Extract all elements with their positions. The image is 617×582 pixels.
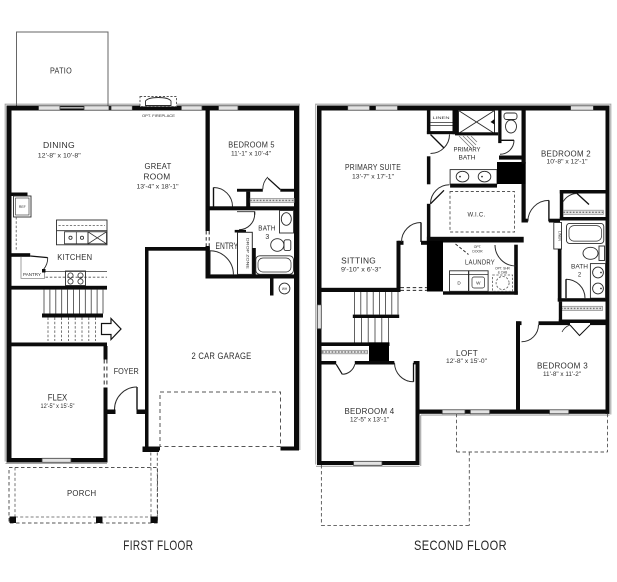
svg-text:KITCHEN: KITCHEN	[57, 252, 92, 262]
svg-text:13'-7" x 17'-1": 13'-7" x 17'-1"	[352, 174, 395, 181]
svg-text:PATIO: PATIO	[50, 67, 72, 76]
svg-text:DINING: DINING	[43, 140, 75, 150]
svg-text:FIRST FLOOR: FIRST FLOOR	[123, 537, 193, 553]
svg-text:12'-5" x 13'-1": 12'-5" x 13'-1"	[350, 417, 390, 424]
svg-text:LINEN: LINEN	[433, 115, 450, 120]
svg-text:GREAT: GREAT	[145, 161, 172, 171]
svg-text:12'-5" x 15'-5": 12'-5" x 15'-5"	[41, 403, 76, 410]
svg-text:OPT.: OPT.	[474, 245, 482, 249]
svg-text:2: 2	[578, 273, 582, 279]
svg-text:WH: WH	[282, 287, 288, 291]
svg-text:LOFT: LOFT	[456, 348, 478, 358]
svg-text:ROOM: ROOM	[144, 172, 171, 182]
svg-text:FOYER: FOYER	[114, 366, 139, 376]
svg-text:BATH: BATH	[459, 156, 476, 162]
svg-text:W.I.C.: W.I.C.	[468, 212, 486, 219]
svg-text:ENTRY: ENTRY	[216, 241, 239, 251]
svg-text:BEDROOM 3: BEDROOM 3	[537, 360, 588, 370]
svg-text:10'-8" x 12'-1": 10'-8" x 12'-1"	[547, 159, 589, 166]
svg-text:D: D	[457, 281, 461, 286]
svg-text:BATH: BATH	[571, 265, 588, 271]
svg-text:SITTING: SITTING	[341, 256, 376, 266]
svg-text:DROP ZONE: DROP ZONE	[245, 238, 250, 270]
svg-text:PORCH: PORCH	[67, 488, 97, 498]
svg-text:2 CAR GARAGE: 2 CAR GARAGE	[192, 351, 252, 362]
svg-text:W: W	[476, 281, 481, 286]
svg-text:FLEX: FLEX	[48, 392, 68, 402]
svg-text:BEDROOM 5: BEDROOM 5	[228, 140, 275, 150]
svg-text:REF: REF	[19, 205, 26, 209]
svg-text:LINEN: LINEN	[558, 231, 562, 242]
svg-text:13'-4" x 18'-1": 13'-4" x 18'-1"	[137, 183, 180, 190]
svg-text:SECOND FLOOR: SECOND FLOOR	[414, 537, 507, 553]
svg-text:BEDROOM 2: BEDROOM 2	[541, 148, 591, 158]
svg-text:BATH: BATH	[258, 226, 276, 233]
svg-text:PRIMARY SUITE: PRIMARY SUITE	[345, 162, 401, 172]
svg-text:11'-1" x 10'-4": 11'-1" x 10'-4"	[231, 151, 272, 158]
svg-text:DOOR: DOOR	[472, 250, 483, 254]
svg-text:11'-8" x 11'-2": 11'-8" x 11'-2"	[543, 371, 582, 378]
svg-text:PRIMARY: PRIMARY	[454, 148, 481, 154]
svg-text:3: 3	[265, 234, 269, 241]
svg-text:LAUNDRY: LAUNDRY	[465, 258, 495, 267]
svg-text:BEDROOM 4: BEDROOM 4	[345, 406, 395, 416]
svg-text:& CAB: & CAB	[498, 271, 508, 275]
svg-text:OPT. FIREPLACE: OPT. FIREPLACE	[142, 114, 176, 118]
svg-text:12'-8" x 15'-0": 12'-8" x 15'-0"	[446, 358, 488, 365]
svg-text:12'-8" x 10'-8": 12'-8" x 10'-8"	[38, 153, 82, 160]
svg-text:9'-10" x 6'-3": 9'-10" x 6'-3"	[341, 266, 382, 273]
svg-text:PANTRY: PANTRY	[23, 272, 41, 277]
